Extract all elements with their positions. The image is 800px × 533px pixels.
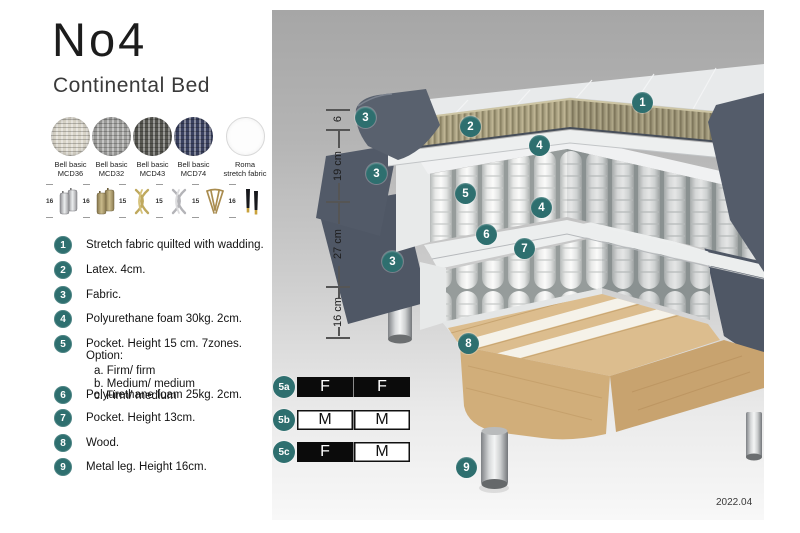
part-badge: 3 (54, 286, 72, 304)
part-badge: 9 (54, 458, 72, 476)
firmness-cell: M (354, 410, 410, 430)
diagram-badge: 2 (460, 116, 481, 137)
dimension-label: 16 cm (332, 297, 344, 327)
firmness-cell: M (297, 410, 353, 430)
part-text: Polyurethane foam 30kg. 2cm. (86, 310, 269, 325)
firmness-cell: F (297, 442, 353, 462)
firmness-row-5a: 5a F F (272, 376, 414, 398)
dimension-label: 19 cm (332, 151, 344, 181)
firmness-row-5c: 5c F M (272, 441, 414, 463)
part-text: Polyurethane foam 25kg. 2cm. (86, 386, 269, 401)
part-badge: 6 (54, 386, 72, 404)
fabric-swatch-icon (226, 117, 265, 156)
part-item: 1 Stretch fabric quilted with wadding. (54, 236, 269, 251)
leg-black-gold-foot-icon (240, 186, 264, 216)
diagram-badge: 7 (514, 238, 535, 259)
firmness-badge: 5c (273, 441, 295, 463)
part-text: Latex. 4cm. (86, 261, 269, 276)
part-text: Pocket. Height 15 cm. 7zones. Option: (86, 335, 269, 363)
dimension-line (338, 203, 340, 224)
dimension-label: 6 (332, 116, 344, 122)
part-badge: 2 (54, 261, 72, 279)
part-item: 9 Metal leg. Height 16cm. (54, 458, 269, 473)
firmness-bar: F M (297, 442, 410, 462)
dimension-tick (326, 337, 350, 339)
fabric-swatch-icon (174, 117, 213, 156)
dimension-line (338, 131, 340, 148)
leg-option: 16 (229, 183, 266, 219)
part-item: 4 Polyurethane foam 30kg. 2cm. (54, 310, 269, 325)
page-title: No4 (52, 16, 147, 63)
firmness-bar: M M (297, 410, 410, 430)
leg-twisted-silver-icon (167, 186, 191, 216)
leg-option: 15 (192, 183, 229, 219)
part-item: 7 Pocket. Height 13cm. (54, 409, 269, 424)
diagram-badge: 4 (531, 197, 552, 218)
page-subtitle: Continental Bed (53, 74, 210, 98)
part-item: 3 Fabric. (54, 286, 269, 301)
part-badge: 8 (54, 434, 72, 452)
fabric-swatch-icon (133, 117, 172, 156)
part-text: Metal leg. Height 16cm. (86, 458, 269, 473)
info-column: No4 Continental Bed Bell basicMCD36 Bell… (0, 0, 272, 533)
part-text: Pocket. Height 13cm. (86, 409, 269, 424)
fabric-swatch-icon (51, 117, 90, 156)
fabric-swatch: Bell basicMCD43 (132, 117, 173, 179)
fabric-swatch: Bell basicMCD74 (173, 117, 214, 179)
diagram-badge: 3 (382, 251, 403, 272)
fabric-swatch: Romastretch fabric (221, 117, 269, 179)
leg-option: 15 (119, 183, 156, 219)
firmness-badge: 5a (273, 376, 295, 398)
firmness-cell: F (297, 377, 353, 397)
leg-options: 16 16 15 (46, 183, 265, 219)
part-badge: 5 (54, 335, 72, 353)
firmness-cell: M (354, 442, 410, 462)
diagram-badge: 6 (476, 224, 497, 245)
diagram-badge: 1 (632, 92, 653, 113)
part-text: Wood. (86, 434, 269, 449)
diagram-badge: 3 (355, 107, 376, 128)
bed-diagram-panel: 6 19 cm 27 cm 16 cm 1 2 3 4 3 5 4 6 7 3 … (272, 10, 764, 520)
fabric-swatch-icon (92, 117, 131, 156)
dimension-line (338, 183, 340, 200)
dimension-label: 27 cm (332, 229, 344, 259)
dimension-line (338, 266, 340, 285)
dimension-tick (326, 109, 350, 111)
part-text: Fabric. (86, 286, 269, 301)
leg-cylinder-silver-icon (57, 186, 81, 216)
diagram-badge: 8 (458, 333, 479, 354)
firmness-row-5b: 5b M M (272, 409, 414, 431)
leg-twisted-gold-icon (130, 186, 154, 216)
leg-option: 16 (46, 183, 83, 219)
firmness-bar: F F (297, 377, 410, 397)
leg-option: 15 (156, 183, 193, 219)
diagram-badge: 4 (529, 135, 550, 156)
fabric-swatch: Bell basicMCD36 (50, 117, 91, 179)
part-item: 8 Wood. (54, 434, 269, 449)
part-badge: 7 (54, 409, 72, 427)
part-item: 2 Latex. 4cm. (54, 261, 269, 276)
dimension-line (338, 327, 340, 336)
fabric-swatch: Bell basicMCD32 (91, 117, 132, 179)
version-date: 2022.04 (716, 497, 752, 508)
part-text: Stretch fabric quilted with wadding. (86, 236, 269, 251)
part-badge: 4 (54, 310, 72, 328)
part-item: 6 Polyurethane foam 25kg. 2cm. (54, 386, 269, 401)
leg-hairpin-icon (203, 186, 227, 216)
fabric-swatches: Bell basicMCD36 Bell basicMCD32 Bell bas… (50, 117, 269, 179)
diagram-badge: 9 (456, 457, 477, 478)
leg-cylinder-brass-icon (94, 186, 118, 216)
diagram-badge: 5 (455, 183, 476, 204)
part-badge: 1 (54, 236, 72, 254)
diagram-badge: 3 (366, 163, 387, 184)
firmness-cell: F (354, 377, 410, 397)
firmness-badge: 5b (273, 409, 295, 431)
leg-option: 16 (83, 183, 120, 219)
